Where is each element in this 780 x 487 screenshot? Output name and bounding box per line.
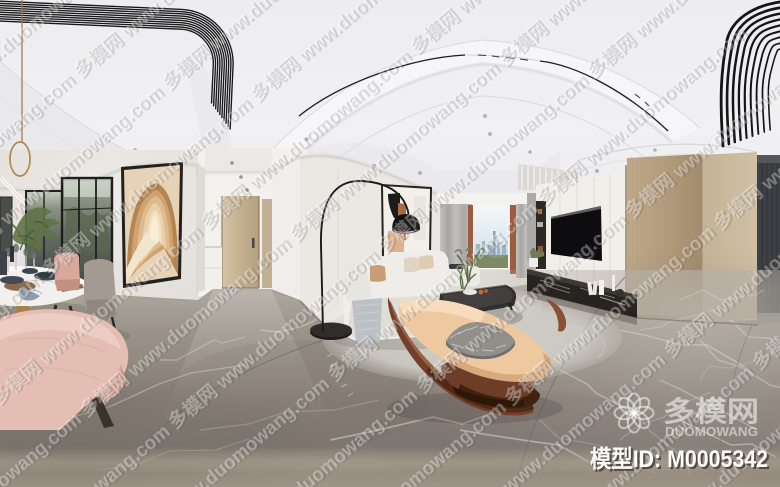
svg-text:多模网: 多模网 bbox=[663, 396, 759, 427]
svg-text:模型ID: M0005342: 模型ID: M0005342 bbox=[590, 446, 768, 473]
svg-text:DUOMOWANG: DUOMOWANG bbox=[665, 425, 758, 439]
